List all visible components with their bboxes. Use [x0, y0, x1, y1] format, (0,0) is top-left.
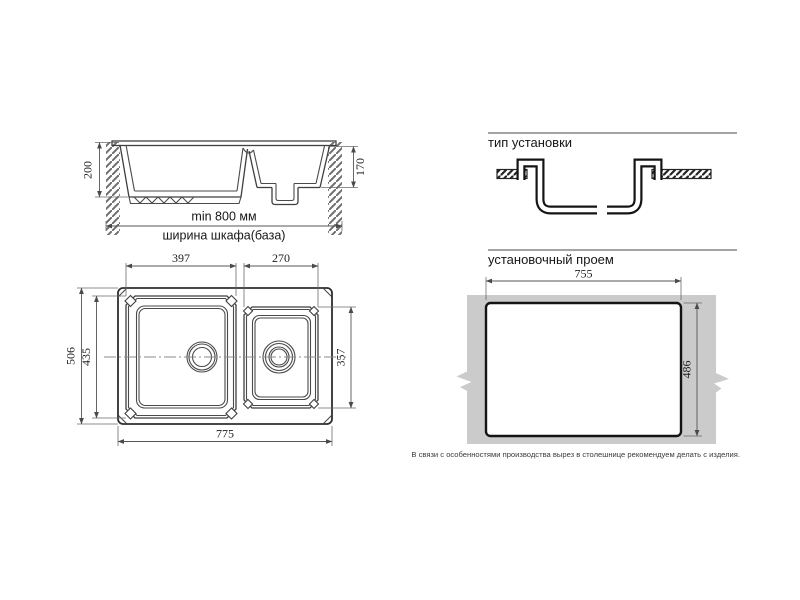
cabinet-min-width-label: min 800 мм [191, 210, 256, 224]
dim-label-270: 270 [272, 251, 290, 265]
installation-type-title: тип установки [488, 135, 572, 150]
sink-edge-profile-left [521, 163, 597, 210]
sink-rim [112, 141, 336, 146]
right-bowl-section [249, 146, 330, 205]
cabinet-wall-right-hatch [328, 142, 342, 235]
dim-cabinet-width: min 800 мм ширина шкафа(база) [106, 210, 342, 243]
dim-label-486: 486 [680, 361, 694, 379]
cabinet-wall-left-hatch [106, 142, 120, 235]
sink-edge-profile-right [607, 163, 658, 210]
drawing-canvas: 200 170 min 800 мм ширина шкафа(база) ти… [0, 0, 800, 600]
plan-view: 397 270 506 435 357 775 [64, 251, 357, 446]
dim-label-357: 357 [334, 349, 348, 367]
production-note: В связи с особенностями производства выр… [411, 450, 740, 459]
dim-label-435: 435 [79, 348, 93, 366]
sink-technical-drawing: 200 170 min 800 мм ширина шкафа(база) ти… [0, 0, 800, 600]
cutout-title: установочный проем [488, 252, 614, 267]
dim-label-170: 170 [353, 158, 367, 176]
bowl-bottom-zigzag [134, 197, 194, 203]
cabinet-caption-label: ширина шкафа(база) [163, 229, 286, 243]
dim-label-755: 755 [575, 267, 593, 281]
installation-type-view: тип установки [488, 133, 737, 210]
dim-label-397: 397 [172, 251, 190, 265]
dim-label-506: 506 [64, 347, 78, 365]
dim-label-775: 775 [216, 427, 234, 441]
left-bowl-section [120, 145, 248, 204]
bowl-divider [243, 148, 254, 153]
dim-overall-width: 775 [118, 426, 332, 446]
drain-recess-inner [276, 184, 294, 201]
cutout-opening [486, 303, 681, 436]
cutout-view: установочный проем 755 486 В связи с осо… [411, 250, 740, 459]
dim-label-200: 200 [81, 161, 95, 179]
cross-section-view: 200 170 min 800 мм ширина шкафа(база) [81, 141, 368, 243]
dim-cutout-width: 755 [486, 267, 681, 301]
